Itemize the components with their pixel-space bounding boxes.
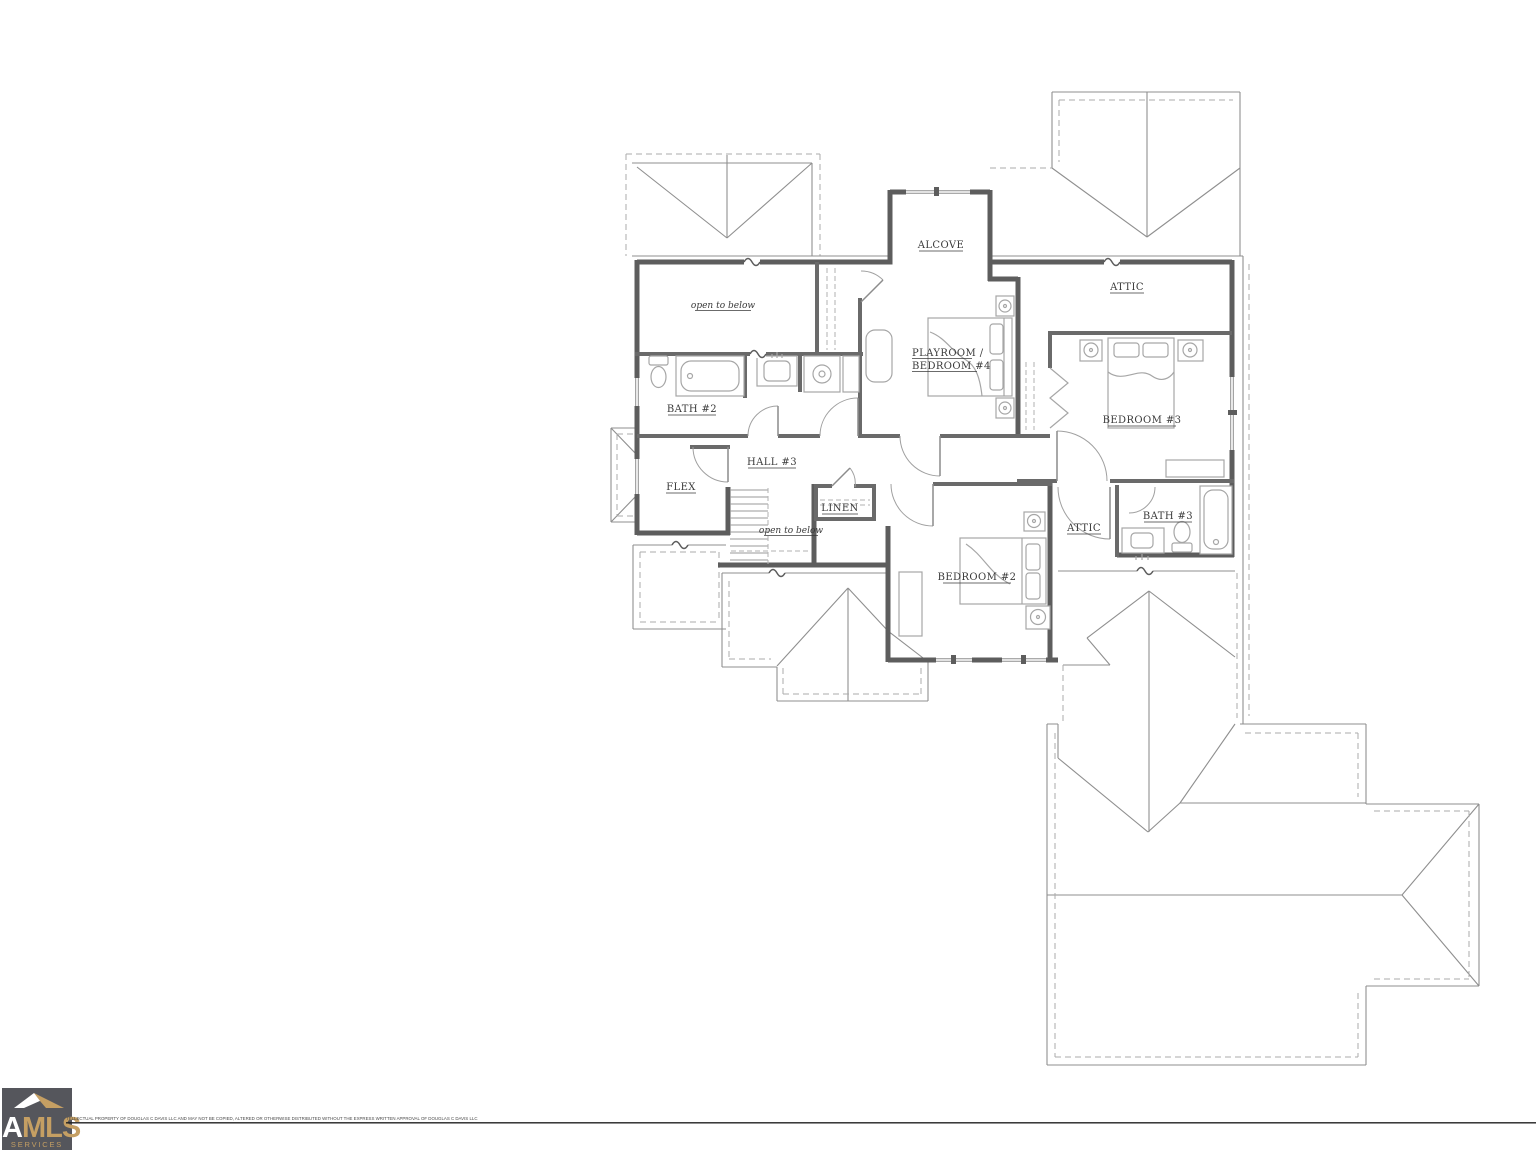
label-open-to-below-stairs: open to below [759, 526, 823, 536]
bath3-fixtures [1122, 486, 1232, 560]
linen-cabinet [843, 356, 859, 392]
label-flex: FLEX [666, 482, 696, 493]
window-mullion [951, 655, 956, 664]
bath2-fixtures [649, 352, 859, 396]
window-mullion [1228, 410, 1237, 415]
dresser [1166, 460, 1224, 477]
window-mullion [1021, 655, 1026, 664]
label-bedroom2: BEDROOM #2 [938, 572, 1017, 583]
label-bath2: BATH #2 [667, 404, 717, 415]
chaise [866, 330, 892, 382]
label-bath3: BATH #3 [1143, 511, 1193, 522]
door-swings [693, 271, 1155, 539]
toilet-bowl [651, 367, 666, 388]
laundry-cabinet [804, 356, 840, 392]
bedroom3-furniture [1080, 338, 1224, 477]
toilet-tank [1172, 543, 1192, 552]
footer: AMLS SERVICES TELLECTUAL PROPERTY OF DOU… [2, 1088, 1536, 1150]
vanity [1122, 528, 1164, 553]
label-bedroom3: BEDROOM #3 [1103, 415, 1182, 426]
label-attic-lower: ATTIC [1066, 523, 1101, 534]
label-open-to-below-upper: open to below [691, 301, 755, 311]
logo-subtext: SERVICES [11, 1140, 63, 1149]
toilet-bowl [1174, 522, 1190, 543]
toilet-tank [649, 356, 668, 365]
label-playroom-line2: BEDROOM #4 [912, 361, 991, 372]
label-attic-upper: ATTIC [1109, 282, 1144, 293]
label-hall3: HALL #3 [747, 457, 797, 468]
copyright-text: TELLECTUAL PROPERTY OF DOUGLAS C DAVIS L… [66, 1116, 478, 1121]
window-mullion [934, 187, 939, 196]
label-linen: LINEN [821, 503, 858, 514]
dresser [899, 572, 922, 636]
label-alcove: ALCOVE [917, 240, 964, 251]
floor-plan-sheet: open to below ALCOVE ATTIC PLAYROOM / BE… [0, 0, 1536, 1152]
bifold-closet-doors [1050, 368, 1068, 428]
label-playroom-line1: PLAYROOM / [912, 348, 984, 359]
bed2 [960, 538, 1046, 604]
